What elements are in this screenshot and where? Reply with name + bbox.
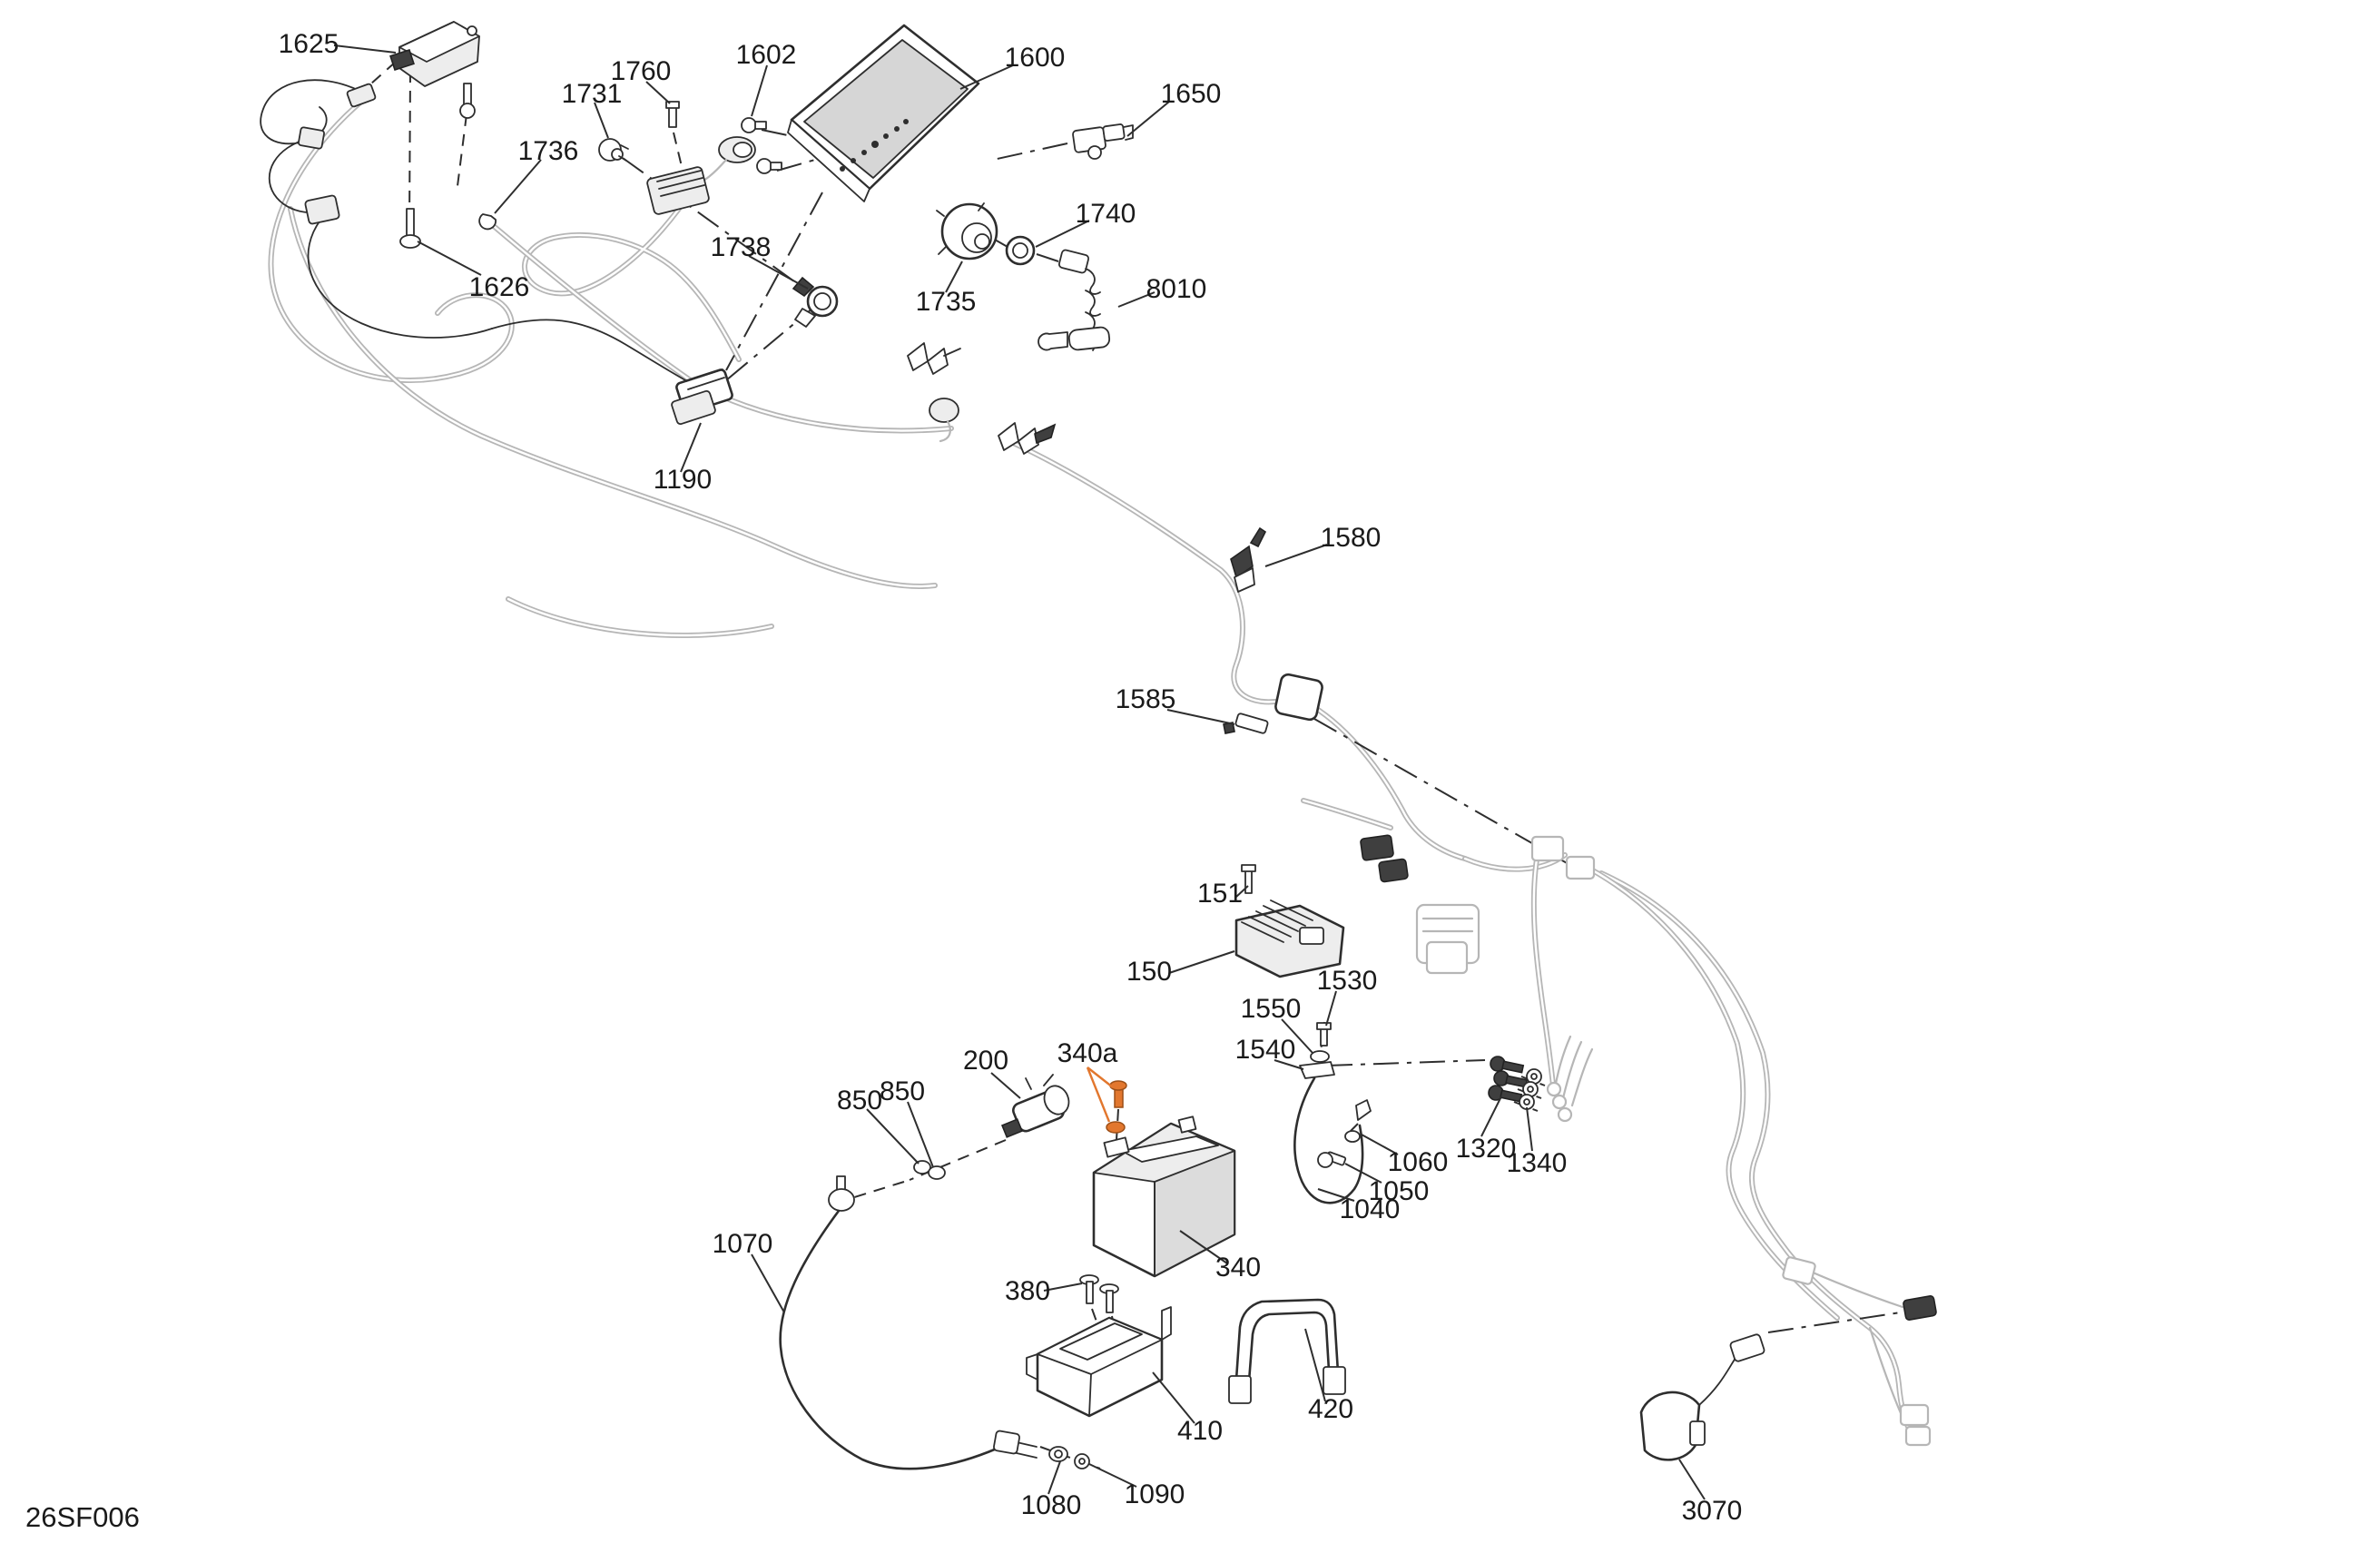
callout-1602: 1602 <box>736 40 797 70</box>
callout-1070: 1070 <box>713 1229 773 1259</box>
battery-screw-340a <box>1106 1081 1126 1133</box>
tether-switch-1735 <box>937 203 997 259</box>
washer-1060 <box>1345 1131 1360 1142</box>
harness-multipin-connector <box>646 166 710 215</box>
callout-420: 420 <box>1308 1394 1353 1424</box>
clip-b <box>998 423 1055 454</box>
callout-1736: 1736 <box>518 136 579 166</box>
nuts-850 <box>914 1161 945 1179</box>
callout-1738: 1738 <box>711 232 772 262</box>
display-unit <box>788 25 979 201</box>
callout-1760: 1760 <box>611 56 672 86</box>
bolts-1320 <box>1489 1057 1527 1102</box>
sensor-plug-1731 <box>599 139 628 161</box>
nut-1550 <box>1311 1051 1329 1062</box>
capped-connector <box>929 398 959 441</box>
bolt-upper <box>460 84 475 118</box>
callout-1650: 1650 <box>1161 79 1222 109</box>
parts-diagram-page: 1625 1626 1736 1731 1760 1602 1600 1650 … <box>0 0 2380 1543</box>
callout-340a: 340a <box>1057 1038 1118 1068</box>
callout-1530: 1530 <box>1317 966 1378 996</box>
fuse-box <box>1417 905 1479 973</box>
callout-8010: 8010 <box>1146 274 1207 304</box>
clip-1736 <box>479 214 496 229</box>
washer-1090 <box>1075 1454 1089 1469</box>
connector-cluster-dark <box>1360 835 1408 882</box>
callout-1040: 1040 <box>1340 1194 1401 1224</box>
screw-1760 <box>666 102 679 127</box>
callout-1600: 1600 <box>1005 43 1066 73</box>
bracket-module-1585 <box>1274 673 1323 722</box>
diagram-code: 26SF006 <box>25 1501 140 1533</box>
callout-1090: 1090 <box>1125 1479 1185 1509</box>
sensor-module-3070 <box>1641 1333 1765 1459</box>
callout-1740: 1740 <box>1076 199 1136 229</box>
connector-cluster-light <box>1532 837 1594 879</box>
connector-1650 <box>1072 124 1133 159</box>
callout-200: 200 <box>963 1046 1008 1076</box>
solenoid-200 <box>1002 1075 1073 1137</box>
callout-340: 340 <box>1215 1253 1261 1283</box>
callout-1626: 1626 <box>469 272 530 302</box>
hold-down-strap <box>1229 1300 1345 1403</box>
callout-1735: 1735 <box>916 287 977 317</box>
connector-left-b <box>298 127 324 149</box>
callout-850-right: 850 <box>880 1076 925 1106</box>
ring-terminals <box>1548 1083 1571 1121</box>
battery-cable-1540 <box>1294 1062 1371 1203</box>
callout-1550: 1550 <box>1241 994 1302 1024</box>
callout-850-left: 850 <box>837 1086 882 1115</box>
callout-1580: 1580 <box>1321 523 1382 553</box>
coiled-cord-8010 <box>1038 250 1110 351</box>
callout-1080: 1080 <box>1021 1490 1082 1520</box>
callout-410: 410 <box>1177 1416 1223 1446</box>
bolt-1626 <box>400 209 420 248</box>
callout-1340: 1340 <box>1507 1148 1568 1178</box>
connector-left-c <box>305 195 340 225</box>
callout-labels: 1625 1626 1736 1731 1760 1602 1600 1650 … <box>25 29 1742 1533</box>
callout-1060: 1060 <box>1388 1147 1449 1177</box>
screw-1530 <box>1317 1023 1331 1046</box>
battery-tray <box>1027 1307 1171 1416</box>
callout-1625: 1625 <box>279 29 339 59</box>
washers-1340 <box>1519 1069 1541 1109</box>
callout-1190: 1190 <box>654 465 713 495</box>
callout-380: 380 <box>1005 1276 1050 1306</box>
callout-1585: 1585 <box>1116 684 1176 714</box>
callout-1540: 1540 <box>1235 1035 1296 1065</box>
positive-cable-1070 <box>781 1176 1037 1469</box>
callout-151: 151 <box>1197 879 1243 909</box>
ecu-module <box>390 22 479 86</box>
callout-3070: 3070 <box>1682 1496 1743 1526</box>
nut-1080 <box>1049 1447 1067 1461</box>
battery <box>1094 1116 1234 1276</box>
callout-150: 150 <box>1126 957 1172 987</box>
connector-right-dark <box>1783 1256 1937 1445</box>
bolt-1050 <box>1318 1152 1346 1167</box>
screws-380 <box>1080 1275 1118 1312</box>
clip-1580 <box>1231 528 1265 592</box>
ring-nut-1740 <box>1007 237 1034 264</box>
clip-a <box>908 343 960 374</box>
